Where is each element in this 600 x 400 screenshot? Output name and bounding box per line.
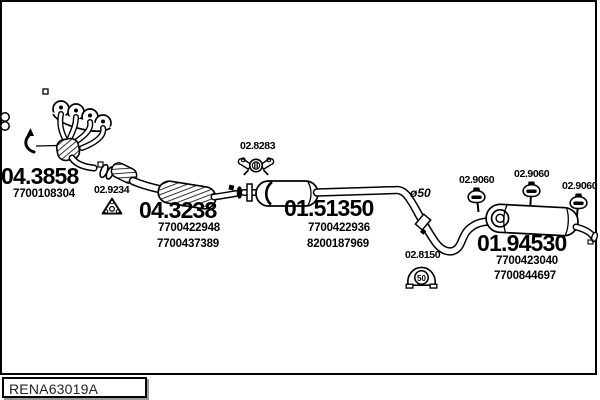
catalyst-part-number-1: 7700422948 bbox=[158, 223, 220, 235]
manifold-part-code: 04.3858 bbox=[1, 165, 79, 188]
gasket-part-code: 02.9234 bbox=[94, 185, 129, 196]
exhaust-manifold-drawing bbox=[52, 101, 112, 168]
mid-muffler-part-number-1: 7700422936 bbox=[308, 223, 370, 235]
clamp-b-part-code: 02.8150 bbox=[405, 250, 440, 261]
rear-muffler-part-code: 01.94530 bbox=[477, 232, 567, 255]
rear-muffler-part-number-1: 7700423040 bbox=[496, 256, 558, 268]
catalyst-outlet-joint-drawing bbox=[214, 184, 258, 201]
catalyst-part-code: 04.3238 bbox=[139, 199, 217, 222]
hanger-2-part-code: 02.9060 bbox=[514, 169, 549, 180]
reference-square-marker bbox=[43, 89, 48, 94]
clamp-a-part-code: 02.8283 bbox=[240, 141, 275, 152]
pipe-diameter-label: ø50 bbox=[410, 187, 431, 199]
drawing-reference-box: RENA63019A bbox=[2, 377, 147, 398]
manifold-part-number: 7700108304 bbox=[13, 189, 75, 201]
drawing-reference-text: RENA63019A bbox=[4, 379, 145, 397]
pipe-clamp-icon bbox=[238, 158, 273, 175]
tail-pipe-drawing bbox=[576, 227, 598, 244]
left-fitting-rings bbox=[1, 113, 9, 130]
muffler-clamp-icon: 50 bbox=[406, 267, 437, 288]
oxygen-sensor-drawing bbox=[26, 128, 58, 152]
rubber-hanger-icon-2 bbox=[523, 181, 540, 196]
catalyst-part-number-2: 7700437389 bbox=[157, 239, 219, 251]
exhaust-parts-diagram: 50 04.3858 7700108304 02.9234 04.3238 77… bbox=[0, 0, 600, 400]
mid-muffler-part-code: 01.51350 bbox=[284, 197, 374, 220]
mid-muffler-part-number-2: 8200187969 bbox=[307, 239, 369, 251]
hanger-3-part-code: 02.9060 bbox=[562, 181, 597, 192]
clamp-size-text: 50 bbox=[417, 274, 426, 283]
rear-muffler-part-number-2: 7700844697 bbox=[494, 271, 556, 283]
rubber-hanger-icon-1 bbox=[468, 187, 485, 202]
flange-gasket-icon bbox=[103, 199, 122, 214]
rubber-hanger-icon-3 bbox=[570, 193, 587, 208]
hanger-1-part-code: 02.9060 bbox=[459, 175, 494, 186]
